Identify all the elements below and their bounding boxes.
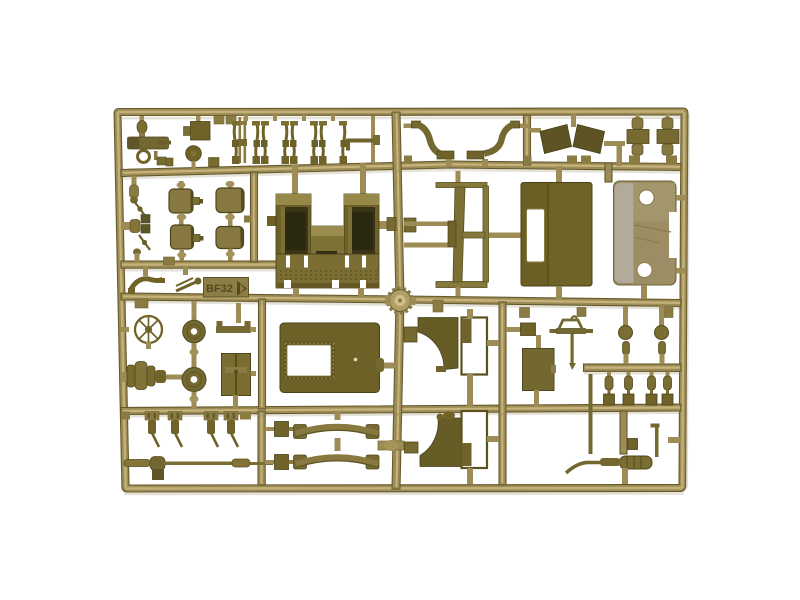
svg-text:BF32: BF32 bbox=[206, 283, 233, 295]
